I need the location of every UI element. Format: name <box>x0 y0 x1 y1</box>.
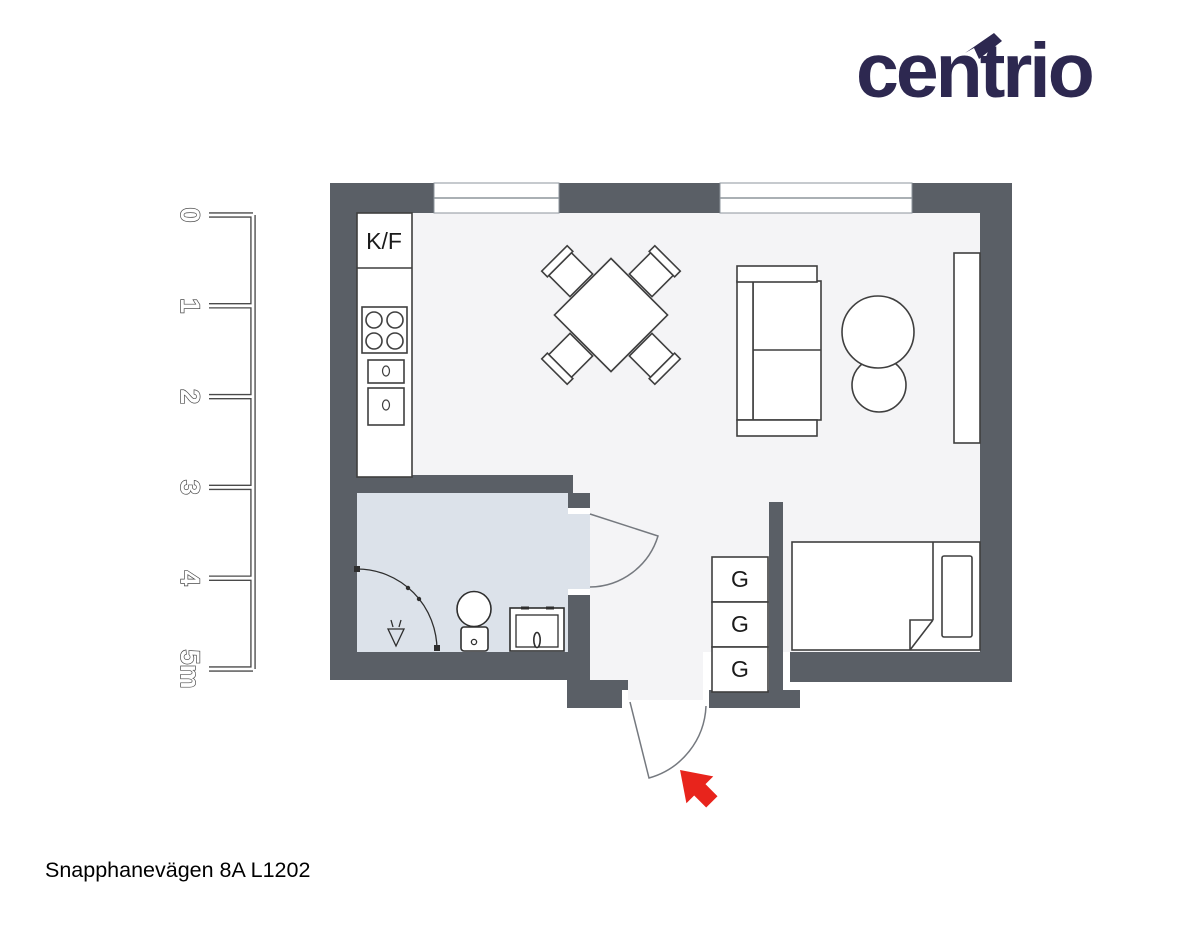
scale-label-3: 3 <box>175 480 205 495</box>
wall-bottom-left <box>330 652 590 680</box>
floorplan-page: centrio 0 1 2 3 4 5m <box>0 0 1200 929</box>
bed-icon <box>792 542 980 650</box>
dining-set <box>542 246 681 385</box>
window-1 <box>434 183 559 213</box>
closet-label: G <box>731 611 749 637</box>
scale-label-0: 0 <box>175 207 205 222</box>
entrance-door <box>622 690 709 778</box>
wall-hall-bedroom-divider <box>769 502 783 692</box>
wardrobe-shelf-icon <box>954 253 980 443</box>
sofa-icon <box>737 266 821 436</box>
closet-group: G G G <box>712 557 768 692</box>
closet-label: G <box>731 656 749 682</box>
window-2 <box>720 183 912 213</box>
wall-left <box>330 183 357 680</box>
wall-right <box>980 183 1012 682</box>
wall-bottom-right <box>790 652 1012 682</box>
kitchen-counter: K/F <box>357 213 412 477</box>
stove-icon <box>362 307 407 353</box>
scale-label-1: 1 <box>175 298 205 313</box>
floorplan-canvas: 0 1 2 3 4 5m <box>0 0 1200 929</box>
kitchen-sink-icon <box>368 360 404 425</box>
scale-label-4: 4 <box>175 571 205 586</box>
fridge-freezer-label: K/F <box>366 228 402 254</box>
bathroom-sink-icon <box>510 608 564 651</box>
scale-bar: 0 1 2 3 4 5m <box>175 207 253 688</box>
bathroom-door-opening <box>568 508 590 595</box>
closet-label: G <box>731 566 749 592</box>
address-label: Snapphanevägen 8A L1202 <box>45 858 310 883</box>
wall-entry-left <box>567 680 628 708</box>
scale-label-5: 5m <box>175 649 205 688</box>
scale-label-2: 2 <box>175 389 205 404</box>
entrance-door-swing <box>630 702 706 778</box>
toilet-icon <box>457 592 491 652</box>
